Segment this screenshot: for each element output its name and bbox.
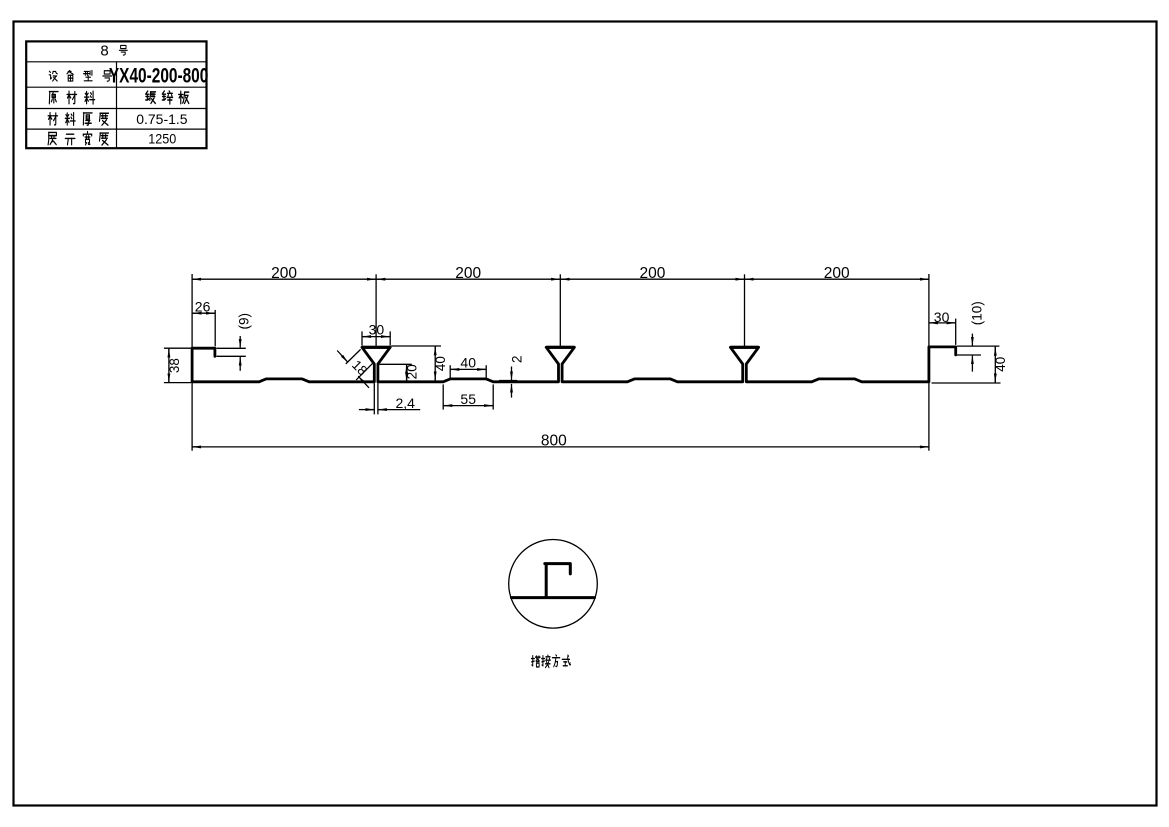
- svg-text:YX40-200-800: YX40-200-800: [109, 63, 208, 87]
- svg-text:(9): (9): [236, 313, 251, 330]
- svg-text:2: 2: [509, 355, 524, 363]
- svg-text:26: 26: [195, 298, 211, 314]
- svg-text:30: 30: [934, 309, 950, 325]
- svg-text:2,4: 2,4: [395, 395, 415, 411]
- svg-text:40: 40: [460, 355, 476, 371]
- svg-text:30: 30: [369, 322, 385, 338]
- svg-text:55: 55: [460, 391, 476, 407]
- svg-text:200: 200: [455, 265, 481, 282]
- svg-text:0.75-1.5: 0.75-1.5: [136, 111, 188, 127]
- svg-text:38: 38: [167, 358, 182, 373]
- svg-text:200: 200: [824, 265, 850, 282]
- svg-text:18: 18: [349, 357, 370, 378]
- svg-text:(10): (10): [969, 301, 984, 325]
- svg-text:40: 40: [993, 357, 1008, 372]
- svg-text:200: 200: [639, 265, 665, 282]
- svg-text:8: 8: [100, 42, 108, 59]
- svg-text:200: 200: [271, 265, 297, 282]
- svg-text:40: 40: [433, 356, 448, 371]
- svg-text:1250: 1250: [148, 131, 176, 147]
- svg-text:20: 20: [405, 364, 420, 379]
- svg-text:800: 800: [541, 432, 567, 449]
